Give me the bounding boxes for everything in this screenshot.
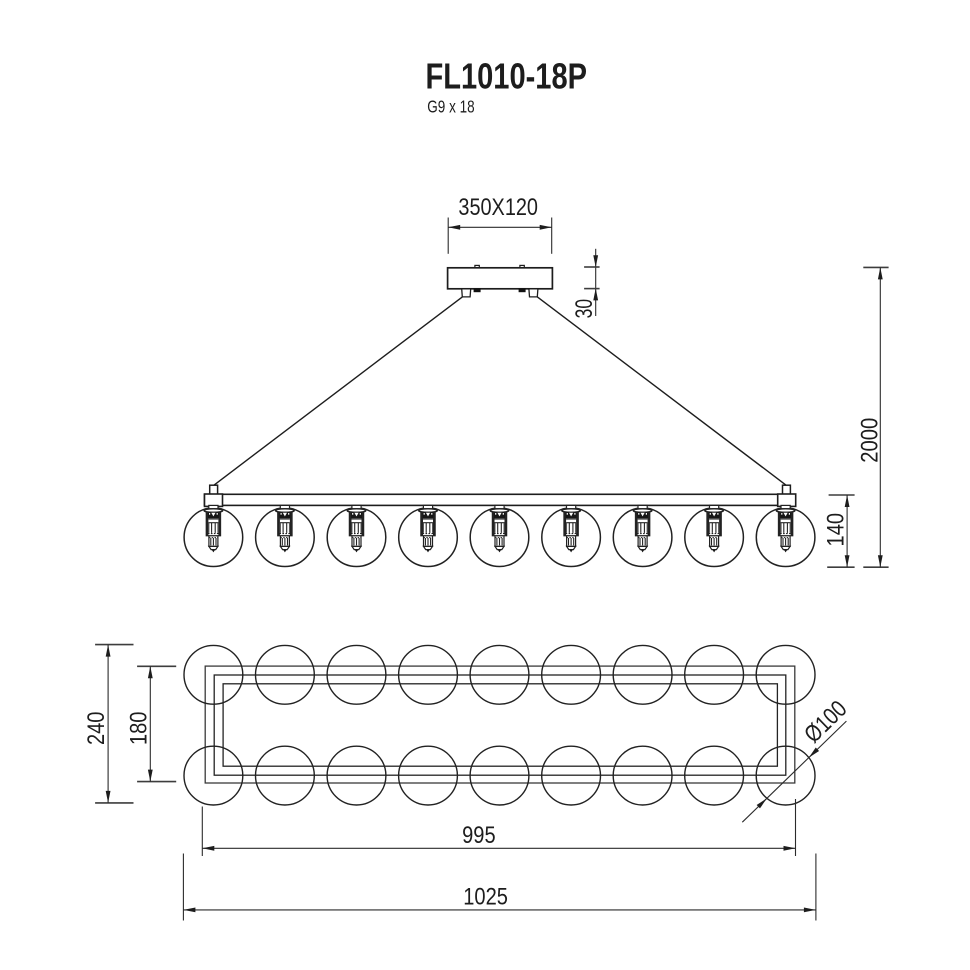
svg-text:FL1010-18P: FL1010-18P [426, 56, 588, 97]
svg-text:1025: 1025 [463, 884, 508, 911]
svg-text:995: 995 [462, 822, 496, 849]
svg-text:2000: 2000 [857, 418, 884, 463]
svg-text:140: 140 [822, 513, 849, 547]
svg-text:G9 x 18: G9 x 18 [427, 97, 474, 117]
svg-text:Ø100: Ø100 [799, 696, 852, 749]
svg-text:350X120: 350X120 [458, 194, 538, 221]
svg-text:240: 240 [83, 712, 110, 746]
svg-text:30: 30 [571, 299, 598, 319]
svg-text:180: 180 [125, 712, 152, 746]
